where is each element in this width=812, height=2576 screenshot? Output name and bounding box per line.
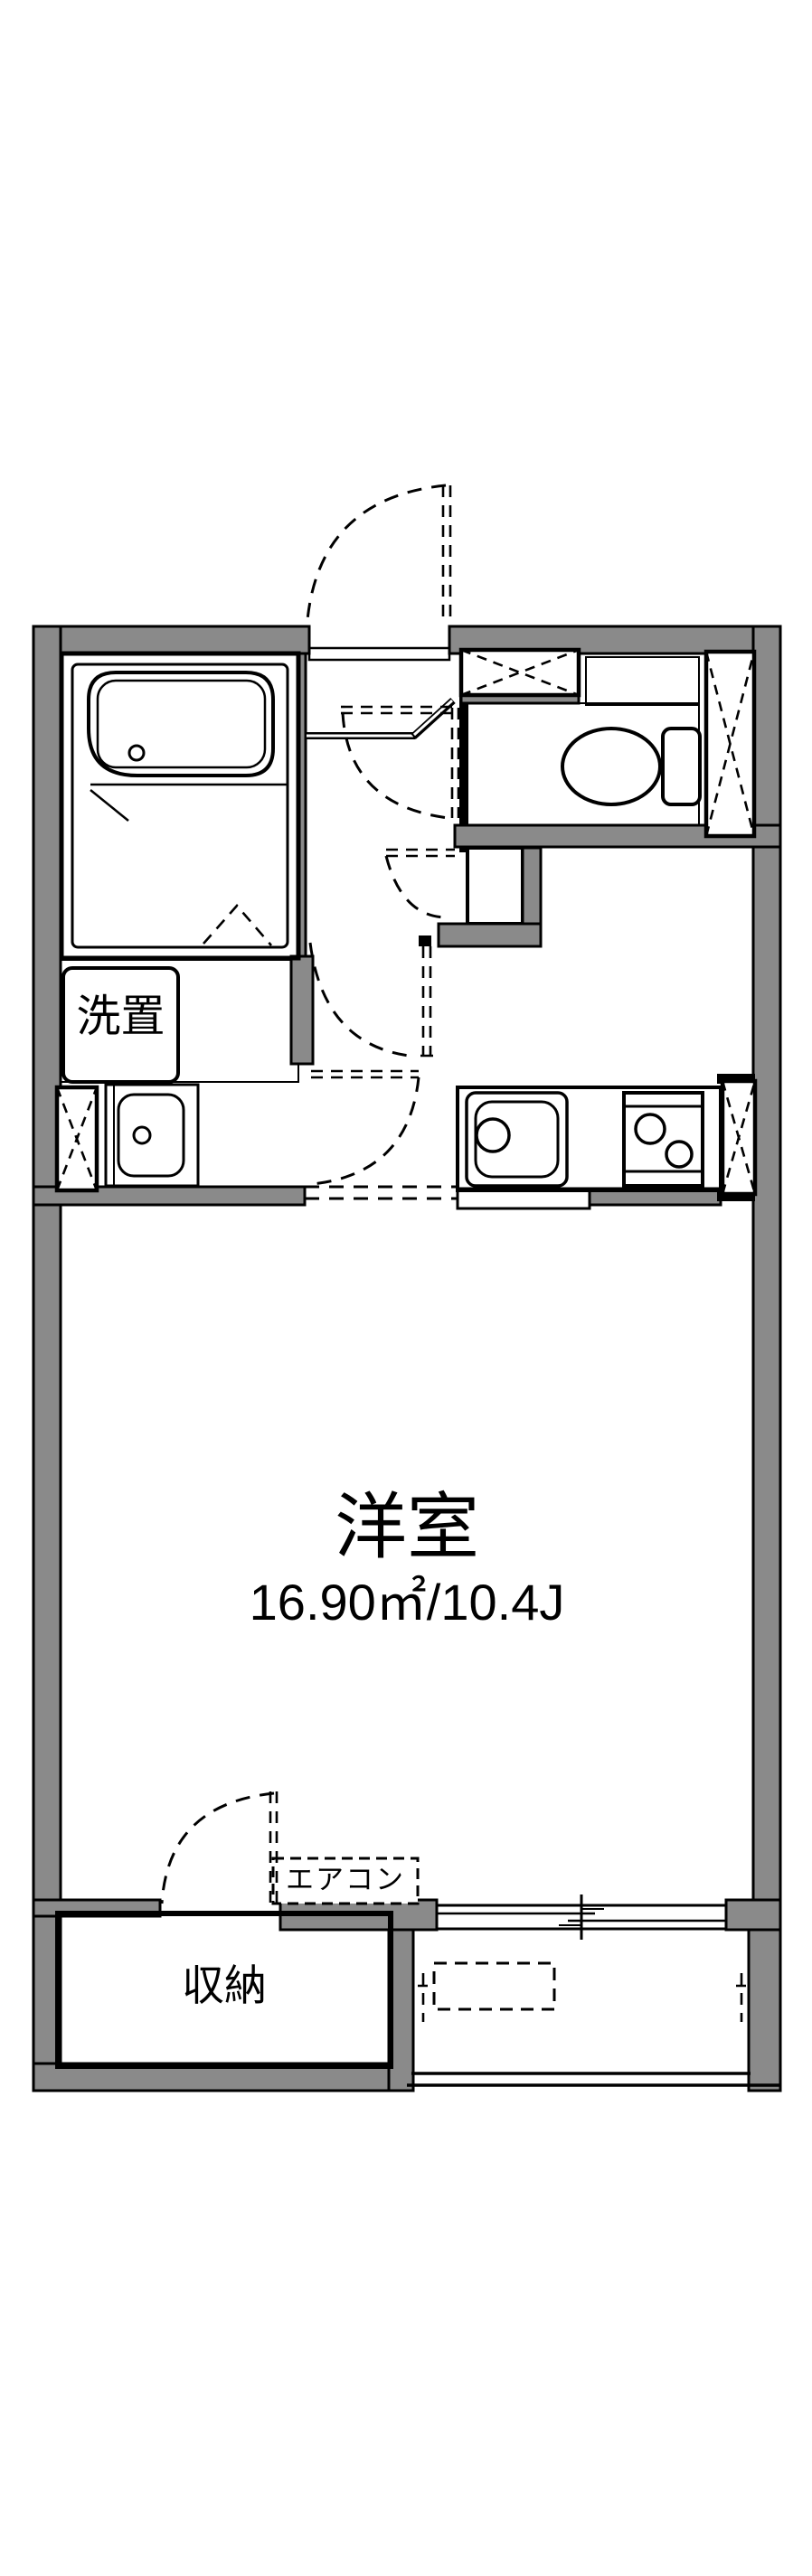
- washroom-window-icon: [57, 1087, 97, 1190]
- kitchen-counter: [458, 1087, 721, 1208]
- balcony-railing: [407, 2073, 780, 2085]
- floorplan-canvas: 洋室 16.90㎡/10.4J 収納 洗置 エアコン: [0, 0, 812, 2576]
- balcony: [407, 1963, 780, 2085]
- balcony-equipment: [434, 1963, 554, 2009]
- aircon-label: エアコン: [273, 1866, 418, 1895]
- stove-icon: [624, 1093, 703, 1186]
- washroom-door-swing-icon: [311, 1071, 419, 1184]
- sliding-window-icon: [437, 1894, 726, 1940]
- hall-partition-door-swing-icon: [386, 850, 455, 917]
- entrance-sill: [309, 648, 449, 660]
- closet-door-swing-icon: [162, 1791, 277, 1904]
- toilet-door-swing-icon: [341, 707, 458, 818]
- entrance-door-swing-icon: [307, 485, 450, 624]
- room-label: 洋室: [226, 1490, 588, 1565]
- kitchen-window-icon: [722, 1081, 755, 1194]
- closet-label: 収納: [134, 1963, 315, 2007]
- kitchen-door-swing-icon: [310, 943, 433, 1057]
- washer-label: 洗置: [48, 994, 194, 1040]
- bathtub-icon: [89, 672, 273, 776]
- floorplan-drawing: [0, 0, 812, 2576]
- bathroom: [61, 653, 298, 958]
- washbasin-icon: [106, 1085, 198, 1186]
- room-boundary-dashes: [305, 1187, 458, 1199]
- toilet-window-icon: [706, 652, 754, 836]
- toilet-icon: [562, 729, 700, 804]
- transom-window-icon: [461, 650, 579, 695]
- kitchen-sink-icon: [467, 1093, 567, 1186]
- room-size-label: 16.90㎡/10.4J: [171, 1576, 643, 1630]
- entrance-tataki: [467, 848, 523, 924]
- bath-folding-door-icon: [203, 906, 271, 945]
